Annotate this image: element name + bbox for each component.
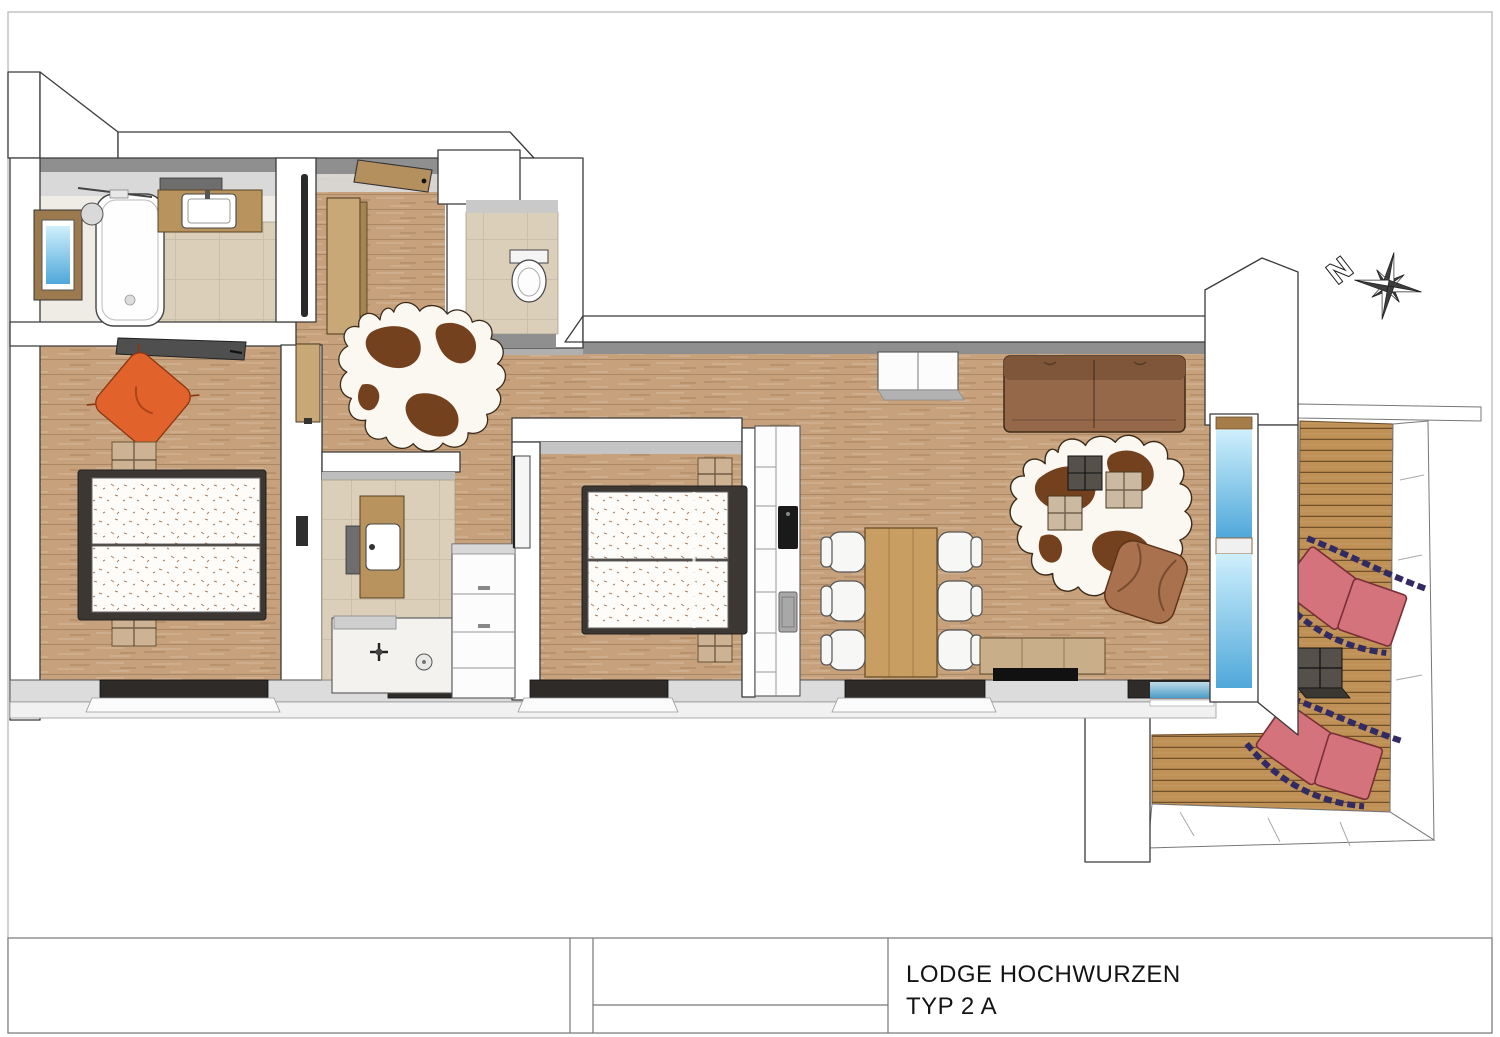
hall-wardrobe: [327, 198, 360, 334]
sliding-door-handle: [301, 174, 308, 317]
bed-2: [582, 486, 747, 634]
balcony-roof-slab: [1298, 404, 1481, 421]
floor-window-bedroom1: [100, 680, 268, 698]
nightstand-2a: [698, 458, 732, 490]
bathroom-right-wall: [276, 158, 316, 322]
bed-1: [78, 470, 266, 620]
dining-chair-1: [821, 532, 865, 572]
title-project: LODGE HOCHWURZEN: [906, 961, 1181, 988]
balcony-railing-right: [1390, 421, 1434, 840]
coffee-cube-1: [1068, 456, 1102, 490]
shower-head: [81, 203, 103, 225]
parapet-wall: [8, 72, 40, 158]
sofa: [1004, 356, 1185, 432]
dining-chair-5: [938, 581, 982, 621]
nightstand-2b: [698, 630, 732, 662]
door-handle: [296, 516, 308, 546]
right-pillar: [1205, 258, 1298, 425]
dresser: [452, 544, 515, 698]
dining-table: [865, 528, 937, 677]
wall-mirror-board: [296, 344, 320, 422]
window-right: [1210, 414, 1258, 702]
mirror-2: [346, 526, 360, 574]
title-unit: TYP 2 A: [906, 993, 997, 1020]
bathroom-window: [34, 210, 82, 300]
coffee-cube-3: [1048, 496, 1082, 530]
dining-chair-6: [938, 630, 982, 670]
shower-glass: [334, 616, 396, 629]
balcony-pillar: [1085, 716, 1150, 862]
north-label: N: [1321, 251, 1358, 290]
top-wall-living: [583, 316, 1215, 342]
coffee-cube-2: [1106, 472, 1142, 508]
dining-chair-2: [821, 581, 865, 621]
balcony-side-table: [1298, 648, 1350, 698]
floor-window-bedroom2: [530, 680, 668, 698]
entry-closet: [878, 352, 964, 400]
floor-window-living: [845, 680, 985, 698]
compass-rose: N: [1321, 247, 1427, 326]
floorplan-drawing: N LODGE HOCHWURZEN TYP 2 A: [0, 0, 1500, 1037]
vanity-sink-2: [360, 496, 404, 598]
tv-panel: [993, 668, 1078, 681]
bedroom2-top-wall: [512, 418, 742, 442]
toilet: [510, 250, 548, 302]
kitchenette: [755, 426, 800, 696]
dining-chair-3: [821, 630, 865, 670]
corner-band: [1255, 425, 1298, 735]
shower: [332, 616, 452, 693]
bathroom-tiles: [158, 222, 276, 322]
title-block: LODGE HOCHWURZEN TYP 2 A: [8, 938, 1492, 1033]
bathroom2-top-wall: [322, 452, 460, 472]
tv-sideboard: [980, 638, 1105, 681]
bedroom2-door: [514, 456, 530, 548]
tub-faucet: [110, 190, 128, 198]
floorplan-sheet: N LODGE HOCHWURZEN TYP 2 A: [0, 0, 1500, 1037]
mirror: [160, 178, 222, 190]
dining-chair-4: [938, 532, 982, 572]
